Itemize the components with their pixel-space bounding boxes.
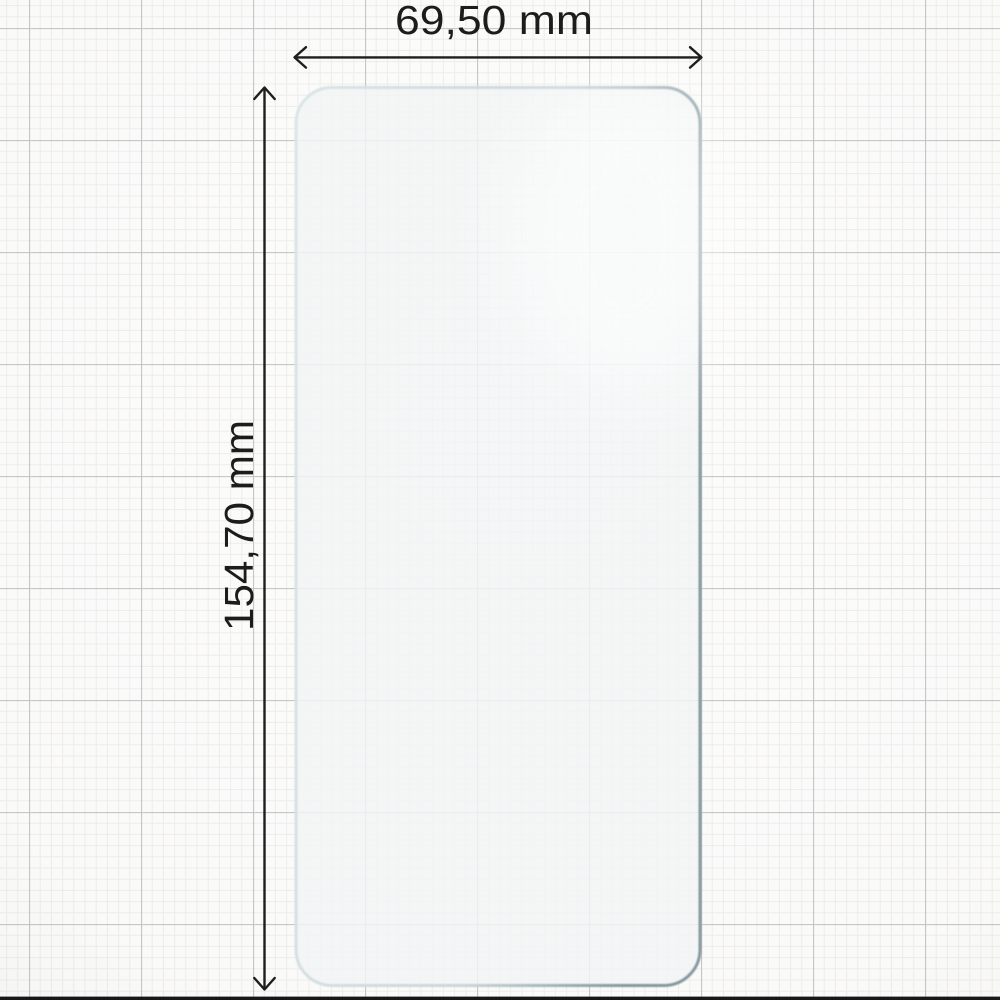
svg-text:154,70 mm: 154,70 mm: [216, 420, 262, 631]
svg-text:69,50 mm: 69,50 mm: [395, 0, 593, 43]
